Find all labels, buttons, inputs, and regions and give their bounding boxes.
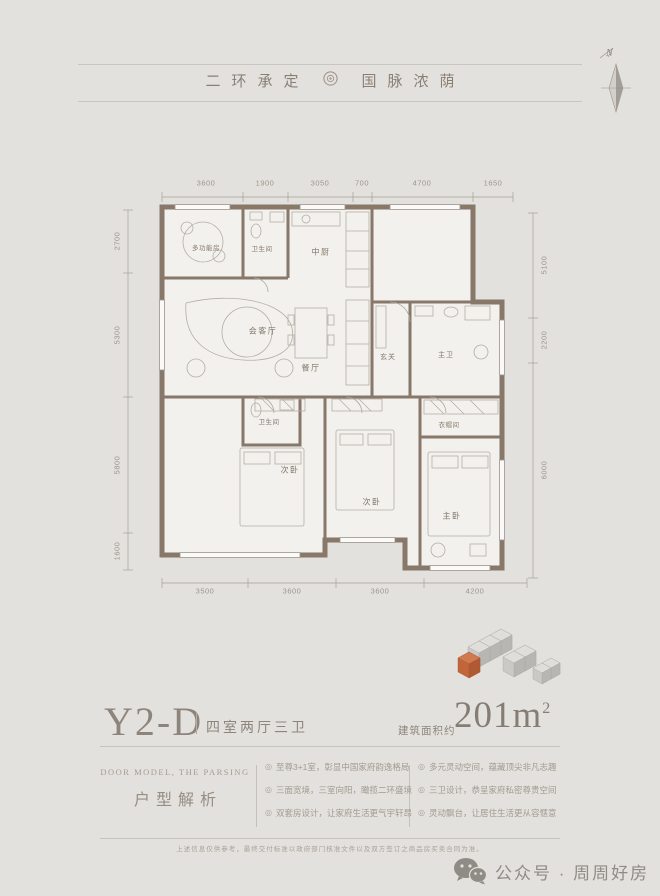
unit-divider [196, 712, 197, 734]
bullet-text: 多元灵动空间，蕴藏顶尖非凡志趣 [429, 762, 557, 772]
bullet-icon: ◎ [265, 785, 272, 795]
area-prefix: 建筑面积约 [398, 723, 456, 738]
room-label-master-bedroom: 主卧 [443, 511, 462, 522]
dim-label: 1600 [113, 542, 122, 561]
area-number: 201m [454, 695, 542, 736]
divider-rule [100, 838, 560, 839]
bullet-text: 至尊3+1室，彰显中国家府韵逸格局 [276, 762, 409, 772]
room-label-dining: 餐厅 [302, 363, 321, 374]
site-map-buildings [458, 629, 560, 684]
disclaimer-text: 上述信息仅供参考，最终交付标准以政府部门核准文件以及双方签订之商品房买卖合同为准… [0, 843, 660, 853]
bullet-text: 三卫设计，恭呈家府私密尊贵空间 [429, 785, 557, 795]
dim-label: 1900 [256, 179, 275, 188]
wechat-account-label: 公众号 · 周周好房 [495, 859, 649, 884]
room-label-living: 会客厅 [249, 326, 278, 337]
room-label-cloakroom: 衣帽间 [439, 419, 460, 429]
bullet-text: 三面宽境，三室向阳，瞰揽二环盛境 [276, 785, 412, 795]
bullet-icon: ◎ [418, 785, 425, 795]
divider-rule [100, 746, 560, 747]
bullet-icon: ◎ [265, 808, 272, 818]
room-label-bathroom-mid: 卫生间 [259, 416, 280, 426]
analysis-column-1: ◎至尊3+1室，彰显中国家府韵逸格局 ◎三面宽境，三室向阳，瞰揽二环盛境 ◎双套… [265, 762, 405, 818]
dim-label: 3600 [197, 179, 216, 188]
header-rule-top [78, 64, 582, 65]
bullet-text: 双套房设计，让家府生活更气宇轩昂 [276, 808, 412, 818]
slogan-right: 国脉浓荫 [351, 70, 466, 91]
dim-label: 5300 [113, 326, 122, 345]
area-value: 201m2 [454, 694, 551, 737]
dim-label: 6000 [540, 461, 549, 480]
unit-code: Y2-D [104, 698, 203, 745]
analysis-bullet-item: ◎双套房设计，让家府生活更气宇轩昂 [265, 808, 405, 818]
compass-north-label: N [605, 48, 614, 59]
wechat-icon [453, 857, 487, 885]
analysis-column-2: ◎多元灵动空间，蕴藏顶尖非凡志趣 ◎三卫设计，恭呈家府私密尊贵空间 ◎灵动飘台，… [418, 762, 558, 818]
unit-layout: 四室两厅三卫 [206, 717, 308, 737]
slogan-left: 二环承定 [194, 70, 309, 91]
dim-label: 2700 [113, 232, 122, 251]
bullet-icon: ◎ [265, 762, 272, 772]
analysis-bullet-item: ◎三卫设计，恭呈家府私密尊贵空间 [418, 785, 558, 795]
door-swings [254, 278, 446, 413]
poster-page: 二环承定 国脉浓荫 N [0, 0, 660, 896]
dim-label: 3500 [196, 587, 215, 596]
bullet-icon: ◎ [418, 762, 425, 772]
room-label-kitchen: 中厨 [312, 247, 331, 258]
room-label-multi-function: 多功能房 [192, 242, 220, 252]
gray-building-block [533, 658, 560, 684]
room-label-bedroom-3: 次卧 [363, 497, 382, 508]
dim-label: 1650 [484, 179, 503, 188]
bullet-icon: ◎ [418, 808, 425, 818]
wechat-watermark: 公众号 · 周周好房 [453, 857, 649, 885]
analysis-bullet-item: ◎灵动飘台，让居住生活更从容惬意 [418, 808, 558, 818]
highlighted-unit-block [458, 652, 480, 678]
dimension-lines [123, 192, 538, 588]
bullet-text: 灵动飘台，让居住生活更从容惬意 [429, 808, 557, 818]
analysis-bullet-item: ◎多元灵动空间，蕴藏顶尖非凡志趣 [418, 762, 558, 772]
dim-label: 3600 [283, 587, 302, 596]
dim-label: 2200 [540, 331, 549, 350]
gray-building-block [468, 629, 512, 667]
dim-label: 4700 [413, 179, 432, 188]
gray-building-block [503, 645, 536, 677]
analysis-title-cn: 户型解析 [100, 786, 250, 810]
room-label-bathroom-top: 卫生间 [252, 243, 273, 253]
seal-icon [312, 71, 338, 91]
dim-label: 3600 [371, 587, 390, 596]
dim-label: 4200 [466, 587, 485, 596]
furniture [181, 212, 498, 557]
analysis-bullet-item: ◎三面宽境，三室向阳，瞰揽二环盛境 [265, 785, 405, 795]
header-slogan: 二环承定 国脉浓荫 [0, 70, 660, 91]
room-label-master-bath: 主卫 [438, 350, 454, 360]
analysis-bullet-item: ◎至尊3+1室，彰显中国家府韵逸格局 [265, 762, 405, 772]
dim-label: 3050 [311, 179, 330, 188]
room-label-foyer: 玄关 [380, 352, 396, 362]
header-rule-bottom [78, 101, 582, 102]
dim-label: 5100 [540, 256, 549, 275]
room-label-bedroom-2: 次卧 [281, 465, 300, 476]
analysis-title-en: DOOR MODEL, THE PARSING [100, 767, 250, 777]
area-superscript: 2 [542, 700, 551, 717]
dim-label: 700 [355, 179, 369, 188]
analysis-divider [256, 765, 257, 827]
dim-label: 5800 [113, 456, 122, 475]
